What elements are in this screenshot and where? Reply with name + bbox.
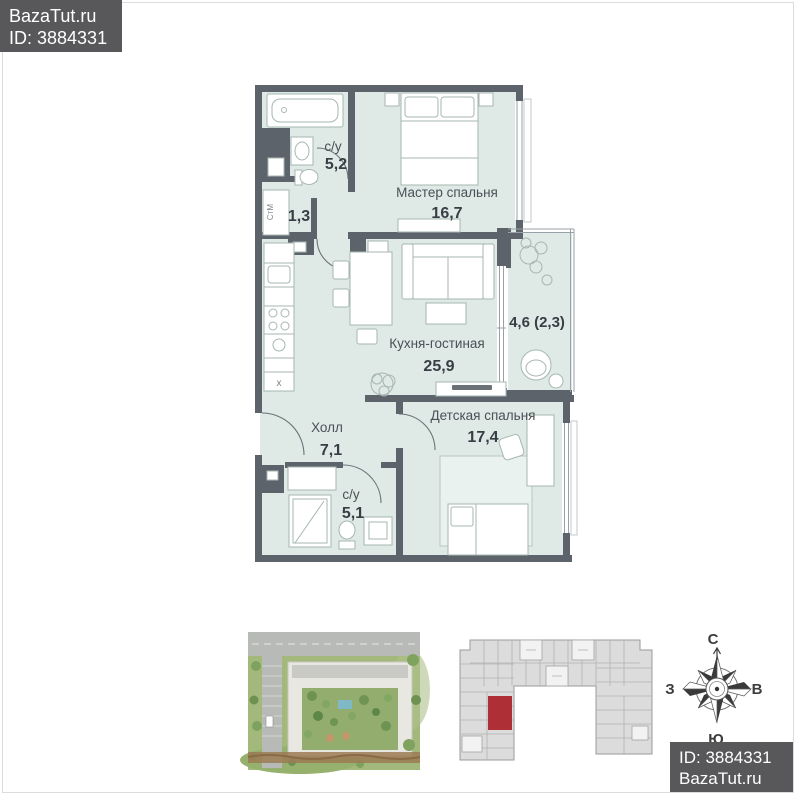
- toilet-tank: [339, 541, 355, 549]
- compass-west-label: З: [665, 681, 674, 698]
- room-area: 16,7: [431, 205, 462, 222]
- cabinet: [288, 467, 336, 490]
- room-area: 17,4: [467, 429, 498, 446]
- plan-scene: х: [0, 0, 800, 800]
- tv: [452, 385, 492, 390]
- car: [266, 716, 273, 727]
- nightstand: [479, 93, 493, 106]
- washbasin: [291, 137, 313, 165]
- toilet-bowl: [300, 170, 318, 185]
- washer-label: СтМ: [266, 204, 275, 220]
- sofa-arm: [483, 244, 494, 299]
- sofa-arm: [402, 244, 413, 299]
- washbasin: [364, 517, 392, 545]
- sofa-back: [402, 244, 494, 257]
- children-room-window: [562, 421, 577, 535]
- room-area: 1,3: [288, 208, 310, 225]
- dishwasher-mark: х: [277, 378, 282, 389]
- room-label: с/у: [324, 139, 342, 154]
- desk: [527, 415, 554, 486]
- balcony-door-window: [497, 266, 506, 390]
- site-plan-thumbnail: [240, 632, 430, 774]
- master-bedroom-window: [515, 99, 531, 222]
- chair: [333, 289, 349, 307]
- room-label: Кухня-гостиная: [389, 336, 485, 351]
- watermark-top: BazaTut.ru ID: 3884331: [0, 0, 122, 52]
- north-arrow: [714, 648, 721, 660]
- highlighted-unit: [488, 696, 512, 730]
- site-name: BazaTut.ru: [9, 5, 114, 27]
- room-area: 25,9: [423, 358, 454, 375]
- pool: [338, 700, 352, 709]
- room-label: Детская спальня: [430, 408, 535, 423]
- room-area: 5,1: [342, 505, 364, 522]
- room-area: 4,6 (2,3): [509, 314, 565, 331]
- chair: [357, 329, 377, 344]
- building-floor-schematic: [460, 640, 652, 760]
- kitchen-furniture: х: [264, 243, 294, 391]
- compass-rose: С Ю З В: [665, 631, 762, 748]
- chair: [333, 261, 349, 279]
- room-area: 5,2: [325, 156, 347, 173]
- listing-id: ID: 3884331: [679, 747, 785, 768]
- coffee-table: [426, 303, 466, 324]
- side-table: [549, 374, 563, 388]
- room-area: 7,1: [320, 442, 342, 459]
- toilet-bowl: [339, 521, 355, 539]
- floor-plan: х: [255, 85, 577, 562]
- listing-id: ID: 3884331: [9, 27, 114, 49]
- watermark-bottom: ID: 3884331 BazaTut.ru: [670, 742, 793, 792]
- single-bed: [448, 504, 528, 555]
- dining-table: [350, 252, 392, 325]
- kitchen-counter: [264, 243, 294, 391]
- site-name: BazaTut.ru: [679, 768, 785, 789]
- listing-screenshot: { "watermark_top": { "site": "BazaTut.ru…: [0, 0, 800, 800]
- room-label: Холл: [311, 420, 343, 435]
- room-label: Мастер спальня: [396, 185, 498, 200]
- double-bed: [401, 93, 478, 185]
- compass-east-label: В: [752, 681, 763, 698]
- room-label: с/у: [342, 487, 360, 502]
- compass-north-label: С: [708, 631, 719, 648]
- nightstand: [385, 93, 399, 106]
